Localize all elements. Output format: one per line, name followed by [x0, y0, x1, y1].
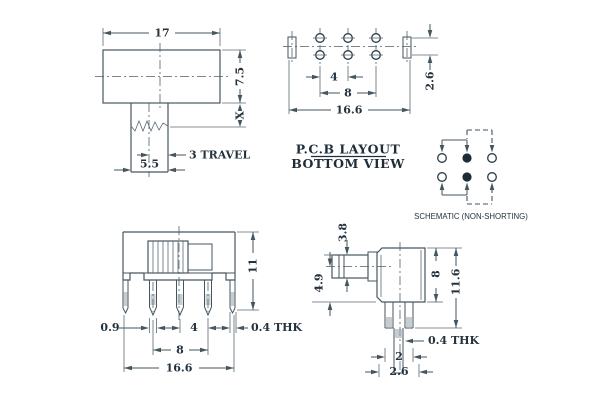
- slide-switch-drawing: 17 7.5 X 3 TRAVEL 5.5: [0, 0, 600, 400]
- dim-pcb-pitch: 4: [330, 71, 338, 84]
- dim-side-knob-offset: 4.9: [313, 273, 326, 292]
- background: [0, 0, 600, 400]
- dim-side-pin-gap-outer: 2.6: [389, 365, 408, 378]
- dim-pcb-total: 16.6: [336, 104, 363, 117]
- dim-front-span: 8: [176, 344, 184, 357]
- dim-side-pin-thickness: 0.4 THK: [428, 334, 480, 347]
- dim-top-travel: 3 TRAVEL: [189, 149, 250, 162]
- dim-front-pitch: 4: [190, 321, 198, 334]
- pcb-title-line2: BOTTOM VIEW: [291, 156, 405, 171]
- dim-pcb-row-gap: 2.6: [424, 71, 437, 90]
- dim-top-height: 7.5: [234, 67, 247, 86]
- dim-front-pin-width: 0.9: [100, 321, 119, 334]
- dim-top-knob-width: 5.5: [140, 158, 159, 171]
- dim-top-width: 17: [154, 27, 169, 40]
- dim-side-pin-gap: 2: [395, 350, 403, 363]
- dim-front-total: 16.6: [166, 362, 193, 375]
- dim-front-tab-thickness: 0.4 THK: [251, 321, 303, 334]
- dim-side-total-height: 11.6: [450, 268, 463, 295]
- dim-top-stem: X: [234, 111, 247, 120]
- dim-front-height: 11: [247, 258, 260, 273]
- dim-pcb-span: 8: [344, 87, 352, 100]
- pcb-title-line1: P.C.B LAYOUT: [296, 142, 401, 157]
- dim-side-body-height: 8: [430, 270, 443, 278]
- dim-side-knob-height: 3.8: [337, 223, 350, 242]
- technical-drawing-page: 17 7.5 X 3 TRAVEL 5.5: [0, 0, 600, 400]
- schematic-caption: SCHEMATIC (NON-SHORTING): [414, 212, 528, 221]
